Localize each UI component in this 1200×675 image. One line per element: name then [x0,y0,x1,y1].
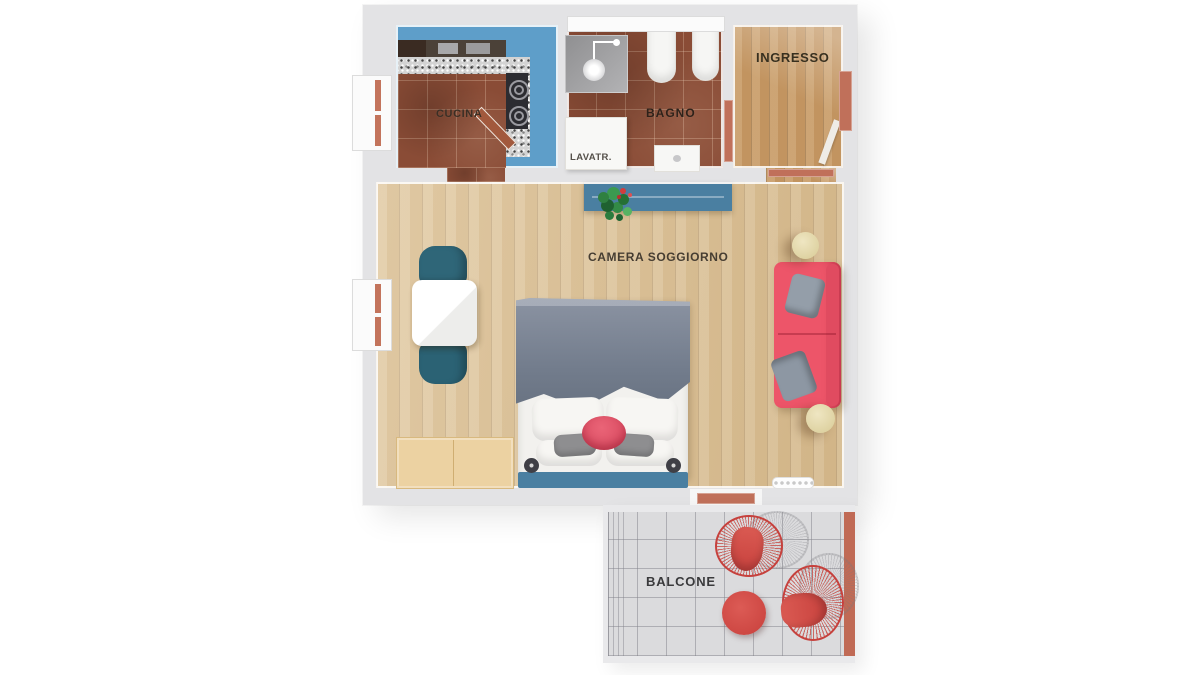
headboard [518,472,688,488]
room-camera-soggiorno: CAMERA SOGGIORNO [376,182,844,488]
room-label-ingresso: INGRESSO [756,50,829,65]
balcony-table [722,591,766,635]
bedpost-knob [524,458,539,473]
room-cucina: CUCINA [396,25,558,168]
kitchen-hood [466,43,490,54]
toilet [647,28,676,83]
stove-burner-icon [509,106,529,126]
dresser [396,437,514,489]
bedpost-knob [666,458,681,473]
bed-cushion-red [582,416,626,450]
entrance-door [839,71,852,131]
entry-door-leaf [818,119,840,165]
balcony: BALCONE [603,505,855,663]
kitchen-stove [506,73,528,129]
bathroom-sink [654,145,700,172]
washing-machine: LAVATR. [565,117,627,170]
sofa-pillow [784,272,827,319]
kitchen-upper-cabinets [426,40,506,57]
radiator [772,477,814,489]
side-pouf [806,404,835,433]
stove-burner-icon [509,80,529,100]
bidet [692,28,719,81]
sofa-seam [778,333,836,335]
dining-chair-bottom [419,342,467,384]
room-label-balcone: BALCONE [646,574,716,589]
room-ingresso: INGRESSO [733,25,843,168]
side-pouf [792,232,819,259]
floor-plan-canvas: CUCINA LAVATR. BAGNO [0,0,1200,675]
bathroom-door [724,100,733,162]
washer-label: LAVATR. [570,152,612,163]
plant-icon [590,184,638,226]
room-label-cucina: CUCINA [436,108,482,120]
ingresso-door-open [768,169,834,177]
shower [565,35,628,93]
dining-table [412,280,477,346]
sofa-backrest [826,264,839,406]
kitchen-doorway [447,168,505,182]
room-label-bagno: BAGNO [646,106,696,120]
bed [518,298,688,488]
room-label-camera-soggiorno: CAMERA SOGGIORNO [588,250,729,264]
kitchen-sink [438,43,458,54]
balcony-door [697,493,755,504]
kitchen-window [352,75,392,151]
living-window [352,279,392,351]
bathroom-top-window [567,16,725,32]
sofa [774,262,841,408]
shower-icon [575,39,619,87]
kitchen-counter-top [398,57,508,75]
balcony-deck-edge [608,512,624,656]
room-bagno: LAVATR. BAGNO [567,25,723,168]
apartment-walls: CUCINA LAVATR. BAGNO [363,5,857,505]
sofa-pillow [770,349,819,403]
